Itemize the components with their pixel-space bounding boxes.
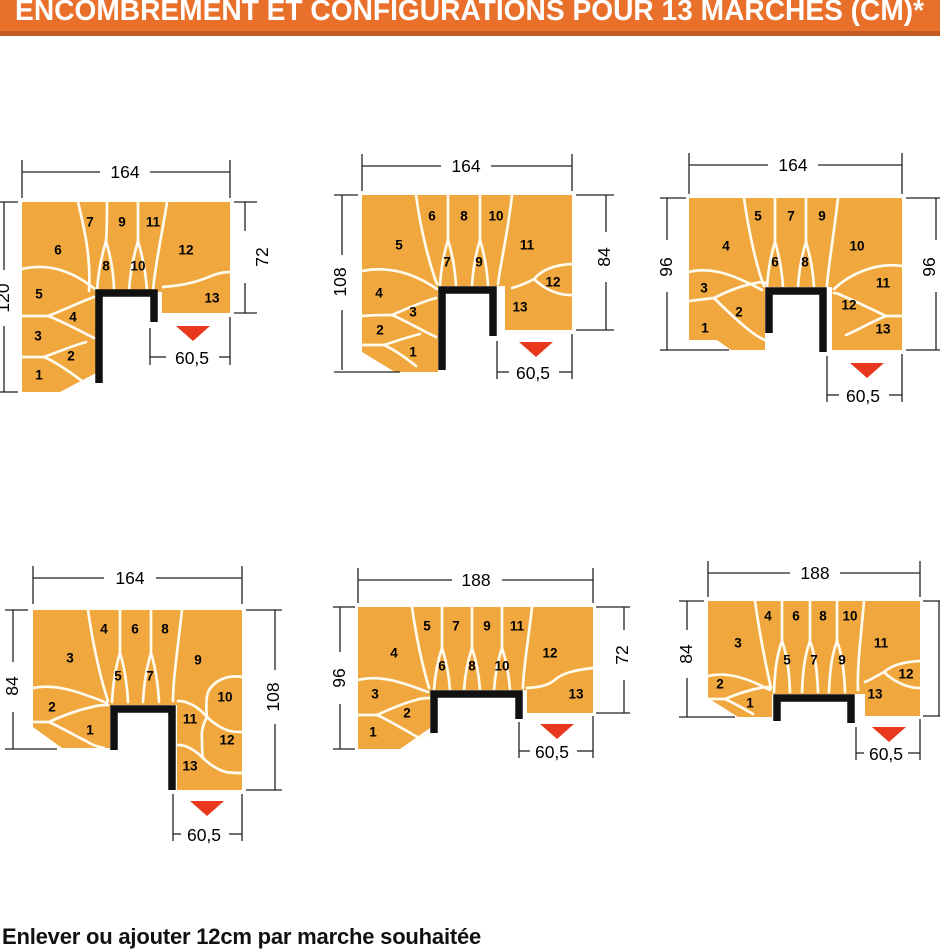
footnote: Enlever ou ajouter 12cm par marche souha… bbox=[2, 924, 940, 940]
step-number: 1 bbox=[746, 696, 754, 711]
step-number: 2 bbox=[376, 323, 384, 338]
step-number: 7 bbox=[452, 619, 460, 634]
dimension-label: 188 bbox=[800, 563, 829, 583]
step-number: 9 bbox=[475, 255, 483, 270]
step-number: 1 bbox=[409, 345, 417, 360]
direction-arrow-icon bbox=[190, 801, 224, 816]
step-number: 13 bbox=[204, 291, 220, 306]
step-number: 10 bbox=[130, 259, 145, 274]
step-number: 3 bbox=[34, 329, 42, 344]
dimension-label: 60,5 bbox=[175, 348, 209, 368]
dimension-label: 84 bbox=[594, 247, 614, 267]
step-number: 8 bbox=[819, 609, 827, 624]
staircase-diagram-1: 123456789101112131641207260,5 bbox=[0, 160, 272, 392]
step-number: 4 bbox=[375, 286, 383, 301]
step-number: 13 bbox=[512, 300, 528, 315]
step-number: 7 bbox=[443, 255, 451, 270]
step-number: 8 bbox=[801, 255, 809, 270]
step-number: 11 bbox=[520, 238, 535, 253]
dimension-label: 164 bbox=[115, 568, 144, 588]
step-number: 8 bbox=[102, 259, 110, 274]
step-number: 9 bbox=[483, 619, 491, 634]
step-number: 3 bbox=[66, 651, 74, 666]
step-number: 5 bbox=[423, 619, 431, 634]
step-number: 2 bbox=[67, 349, 75, 364]
step-number: 6 bbox=[792, 609, 800, 624]
step-number: 10 bbox=[217, 690, 232, 705]
step-number: 11 bbox=[510, 619, 525, 634]
stairwell-outline bbox=[769, 291, 823, 352]
dimension-label: 72 bbox=[612, 645, 632, 664]
dimension-label: 60,5 bbox=[869, 744, 903, 764]
step-number: 2 bbox=[48, 700, 56, 715]
step-number: 3 bbox=[700, 281, 708, 296]
dimension-label: 84 bbox=[2, 676, 22, 696]
dimension-label: 188 bbox=[461, 570, 490, 590]
staircase-diagram-2: 123456789101112131641088460,5 bbox=[330, 154, 614, 383]
dimension-label: 96 bbox=[329, 668, 349, 687]
step-number: 13 bbox=[867, 687, 883, 702]
step-number: 1 bbox=[35, 368, 43, 383]
dimension-label: 108 bbox=[330, 267, 350, 296]
step-number: 13 bbox=[875, 322, 891, 337]
dimension-label: 60,5 bbox=[535, 742, 569, 762]
step-number: 6 bbox=[771, 255, 779, 270]
step-number: 12 bbox=[841, 298, 856, 313]
step-number: 8 bbox=[161, 622, 169, 637]
dimension-label: 60,5 bbox=[846, 386, 880, 406]
step-number: 7 bbox=[787, 209, 795, 224]
stairwell-outline bbox=[777, 698, 851, 723]
step-number: 4 bbox=[722, 239, 730, 254]
stairwell-outline bbox=[442, 290, 493, 370]
step-number: 2 bbox=[716, 677, 724, 692]
step-number: 9 bbox=[818, 209, 826, 224]
step-number: 5 bbox=[783, 653, 791, 668]
dimension-label: 164 bbox=[110, 162, 139, 182]
step-number: 3 bbox=[734, 636, 742, 651]
dimension-label: 164 bbox=[451, 156, 480, 176]
dimension-label: 60,5 bbox=[187, 825, 221, 845]
step-number: 10 bbox=[488, 209, 503, 224]
step-number: 9 bbox=[118, 215, 126, 230]
step-number: 5 bbox=[395, 238, 403, 253]
step-number: 6 bbox=[131, 622, 139, 637]
dimension-label: 108 bbox=[263, 682, 283, 711]
direction-arrow-icon bbox=[872, 727, 906, 742]
step-number: 12 bbox=[219, 733, 234, 748]
step-number: 11 bbox=[146, 215, 161, 230]
step-number: 6 bbox=[428, 209, 436, 224]
dimension-label: 84 bbox=[676, 644, 696, 664]
step-number: 12 bbox=[542, 646, 557, 661]
step-number: 4 bbox=[69, 310, 77, 325]
step-number: 2 bbox=[735, 305, 743, 320]
dimension-label: 120 bbox=[0, 283, 13, 312]
step-number: 7 bbox=[146, 669, 154, 684]
step-number: 4 bbox=[390, 646, 398, 661]
direction-arrow-icon bbox=[176, 326, 210, 341]
staircase-diagram-5: 12345678910111213188967260,5 bbox=[329, 568, 632, 762]
stairwell-outline bbox=[99, 293, 154, 383]
step-number: 7 bbox=[810, 653, 818, 668]
step-number: 12 bbox=[898, 667, 913, 682]
step-divider bbox=[362, 315, 392, 316]
step-number: 9 bbox=[194, 653, 202, 668]
direction-arrow-icon bbox=[519, 342, 553, 357]
step-number: 10 bbox=[842, 609, 857, 624]
step-number: 6 bbox=[438, 659, 446, 674]
step-number: 11 bbox=[874, 636, 889, 651]
stair-footprint bbox=[689, 198, 902, 350]
staircase-diagram-6: 123456789101112131888460,5 bbox=[676, 561, 940, 764]
step-number: 1 bbox=[86, 723, 94, 738]
step-number: 5 bbox=[754, 209, 762, 224]
staircase-diagrams: 123456789101112131641207260,512345678910… bbox=[0, 0, 940, 940]
direction-arrow-icon bbox=[540, 724, 574, 739]
step-number: 13 bbox=[568, 687, 584, 702]
stairwell-outline bbox=[114, 709, 172, 790]
step-number: 2 bbox=[403, 706, 411, 721]
step-number: 4 bbox=[764, 609, 772, 624]
footnote-text: Enlever ou ajouter 12cm par marche souha… bbox=[2, 924, 481, 949]
step-number: 3 bbox=[409, 305, 417, 320]
step-number: 5 bbox=[35, 287, 43, 302]
step-number: 9 bbox=[838, 653, 846, 668]
step-number: 6 bbox=[54, 243, 62, 258]
dimension-label: 164 bbox=[778, 155, 807, 175]
staircase-diagram-3: 12345678910111213164969660,5 bbox=[656, 153, 940, 406]
step-number: 1 bbox=[701, 321, 709, 336]
step-number: 1 bbox=[369, 725, 377, 740]
step-number: 11 bbox=[876, 276, 891, 291]
direction-arrow-icon bbox=[850, 363, 884, 378]
dimension-label: 96 bbox=[919, 257, 939, 276]
step-number: 12 bbox=[545, 275, 560, 290]
step-number: 12 bbox=[178, 243, 193, 258]
step-number: 8 bbox=[460, 209, 468, 224]
step-number: 5 bbox=[114, 669, 122, 684]
dimension-label: 60,5 bbox=[516, 363, 550, 383]
step-number: 7 bbox=[86, 215, 94, 230]
stairwell-outline bbox=[434, 694, 519, 733]
staircase-diagram-4: 123456789101112131648410860,5 bbox=[2, 566, 283, 845]
step-divider bbox=[106, 202, 107, 241]
step-number: 4 bbox=[100, 622, 108, 637]
dimension-label: 72 bbox=[252, 247, 272, 266]
step-number: 10 bbox=[849, 239, 864, 254]
step-number: 10 bbox=[494, 659, 509, 674]
step-number: 13 bbox=[182, 759, 198, 774]
step-number: 11 bbox=[183, 712, 198, 727]
step-number: 3 bbox=[371, 687, 379, 702]
dimension-label: 96 bbox=[656, 257, 676, 276]
step-number: 8 bbox=[468, 659, 476, 674]
